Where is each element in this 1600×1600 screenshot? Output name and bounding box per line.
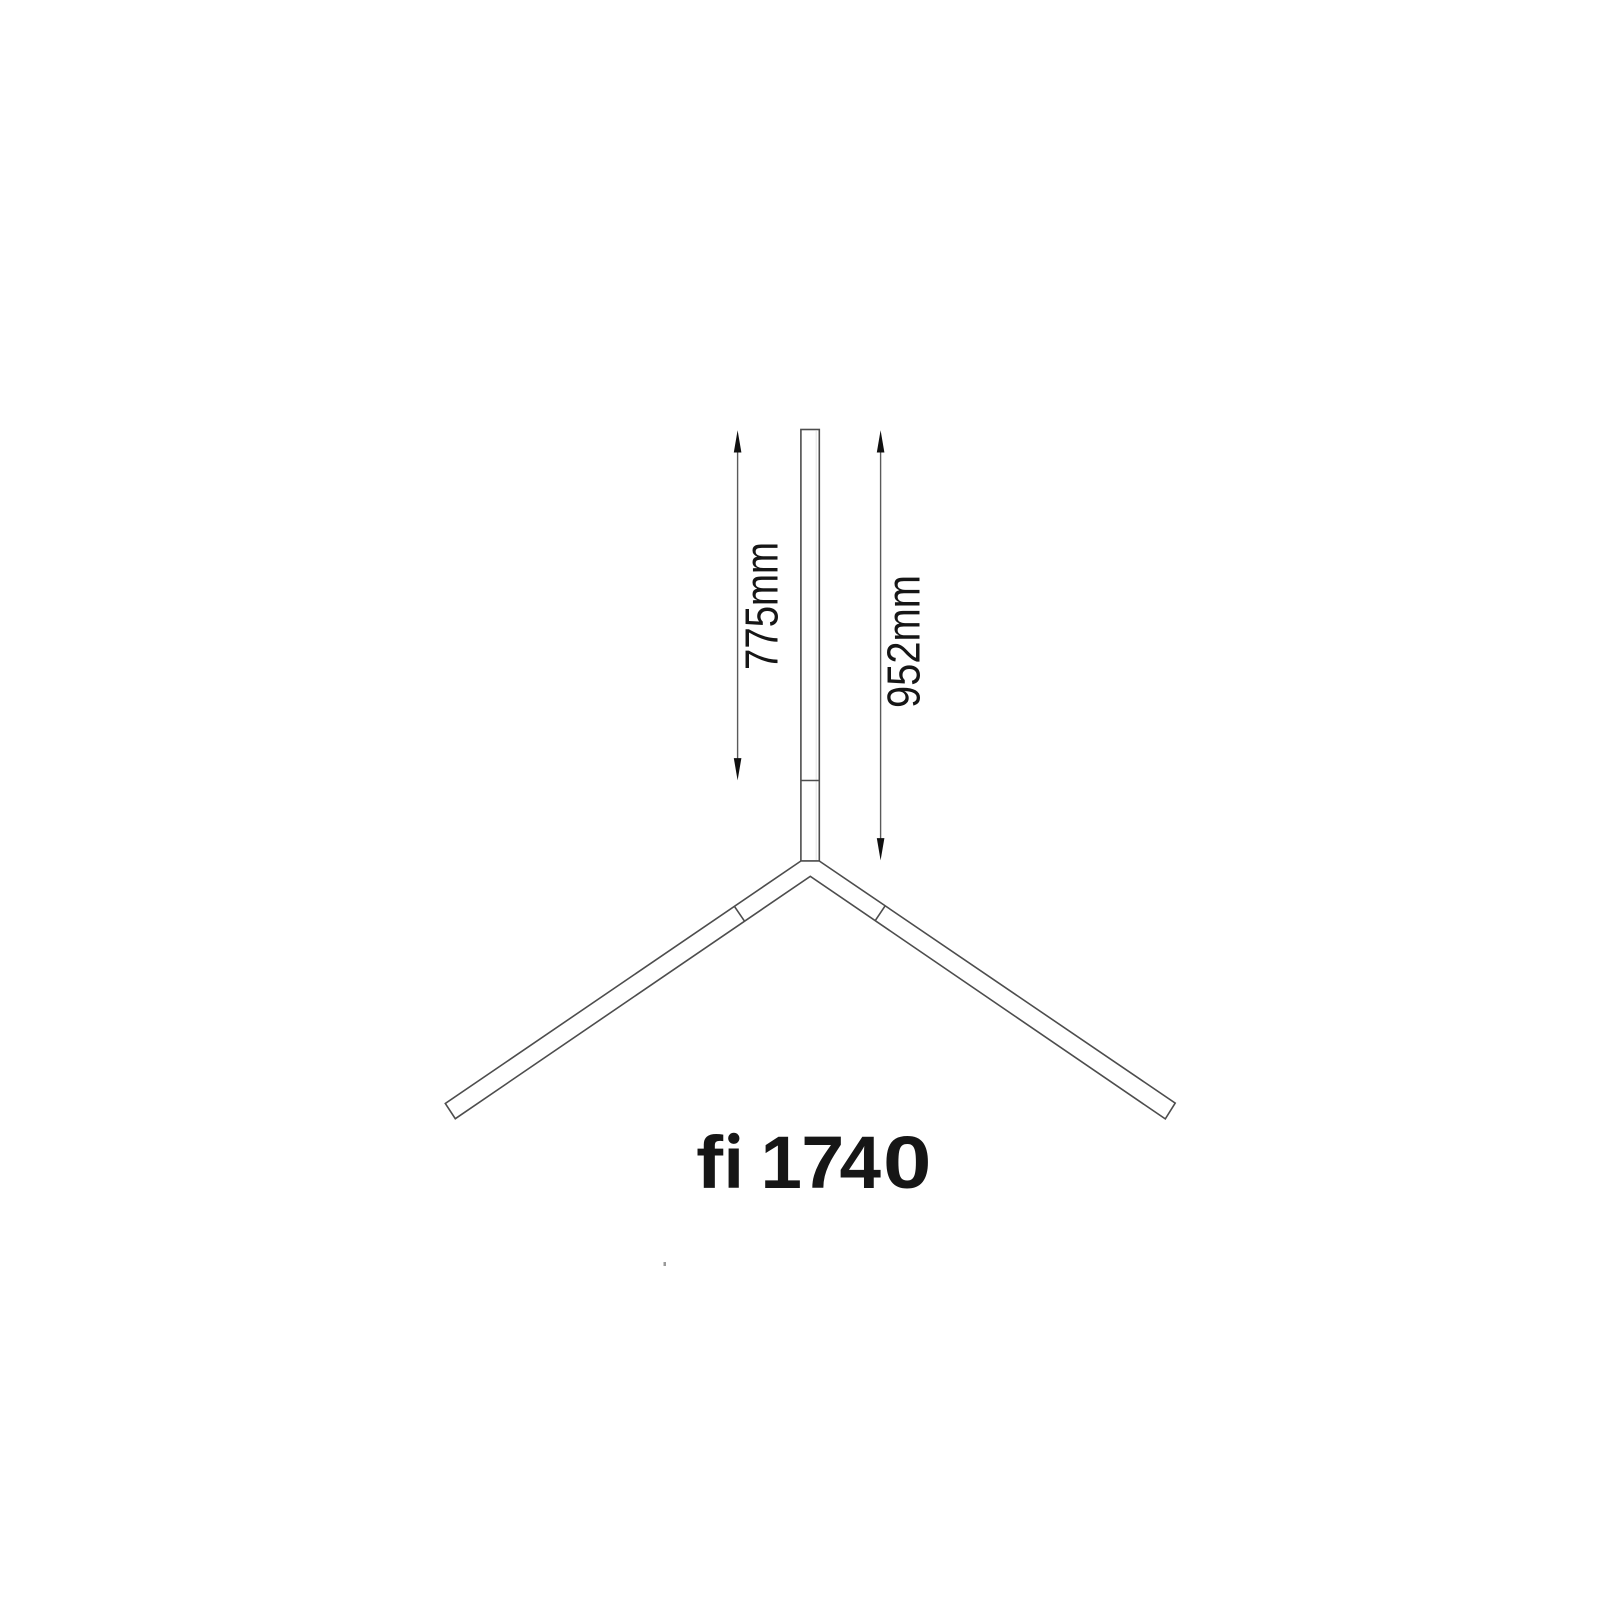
svg-text:f: f: [696, 1121, 723, 1204]
svg-text:4: 4: [840, 1121, 882, 1204]
svg-text:1: 1: [761, 1121, 802, 1204]
svg-text:0: 0: [883, 1121, 932, 1204]
svg-text:7: 7: [801, 1121, 844, 1204]
svg-text:775mm: 775mm: [736, 542, 788, 670]
svg-text:952mm: 952mm: [878, 575, 930, 708]
